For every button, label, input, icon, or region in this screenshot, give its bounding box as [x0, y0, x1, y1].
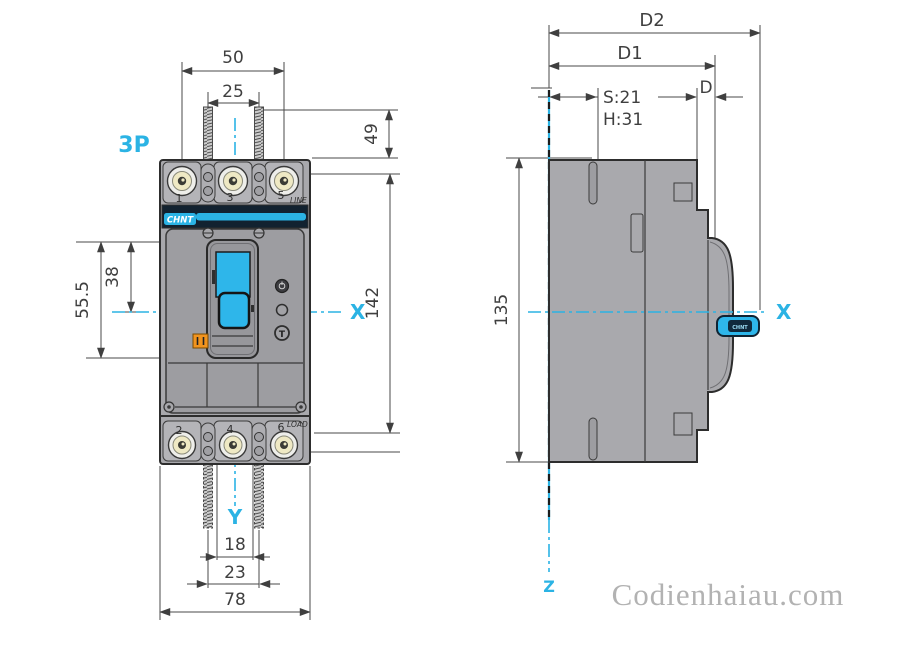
mccb-dimension-drawing: 50 25 49 142 55.5 38 18 23 78 3P X Y — [0, 0, 900, 648]
dim-23: 23 — [224, 563, 246, 583]
front-view: 50 25 49 142 55.5 38 18 23 78 3P X Y — [73, 48, 400, 620]
dim-38: 38 — [103, 266, 123, 288]
axis-y-label: Y — [227, 505, 243, 529]
watermark: Codienhaiau.com — [612, 577, 845, 612]
axis-x-label-side: X — [776, 300, 792, 324]
toggle-handle — [219, 293, 249, 328]
pole-count-label: 3P — [118, 133, 149, 158]
side-view: D2 D1 S:21 H:31 D 135 CHNT — [492, 10, 792, 596]
terminal-2-label: 2 — [176, 424, 183, 437]
test-button-label: T — [279, 330, 286, 340]
dim-d: D — [699, 78, 712, 98]
line-side-label: LINE — [290, 196, 307, 205]
dim-25: 25 — [222, 82, 244, 102]
chnt-logo-text: CHNT — [167, 216, 194, 226]
brand-band: CHNT — [162, 205, 308, 228]
dim-18: 18 — [224, 535, 246, 555]
dim-s21: S:21 — [603, 88, 641, 108]
dim-49: 49 — [362, 123, 382, 145]
toggle-recess — [207, 240, 258, 358]
aux-button — [277, 305, 288, 316]
axis-z-label: Z — [543, 577, 555, 596]
terminal-5-label: 5 — [278, 189, 285, 202]
terminal-1-label: 1 — [176, 192, 183, 205]
dim-135: 135 — [492, 294, 512, 326]
trip-indicator — [193, 334, 208, 348]
axis-x-label-front: X — [350, 300, 366, 324]
dim-142: 142 — [363, 287, 383, 319]
side-body — [549, 160, 733, 462]
drawing-svg: 50 25 49 142 55.5 38 18 23 78 3P X Y — [0, 0, 900, 648]
dim-78: 78 — [224, 590, 246, 610]
terminal-4-label: 4 — [227, 423, 234, 436]
side-toggle-handle: CHNT — [717, 316, 759, 336]
dim-55-5: 55.5 — [73, 281, 93, 319]
dim-50: 50 — [222, 48, 244, 68]
dim-d2: D2 — [639, 10, 664, 31]
dim-h31: H:31 — [603, 110, 643, 130]
terminal-6-label: 6 — [278, 421, 285, 434]
test-button: T — [275, 326, 289, 340]
load-side-label: LOAD — [287, 420, 308, 429]
dim-d1: D1 — [617, 43, 642, 64]
indicator-window — [276, 280, 289, 293]
terminal-3-label: 3 — [227, 191, 234, 204]
toggle-window — [216, 252, 250, 297]
side-handle-brand: CHNT — [732, 325, 748, 331]
